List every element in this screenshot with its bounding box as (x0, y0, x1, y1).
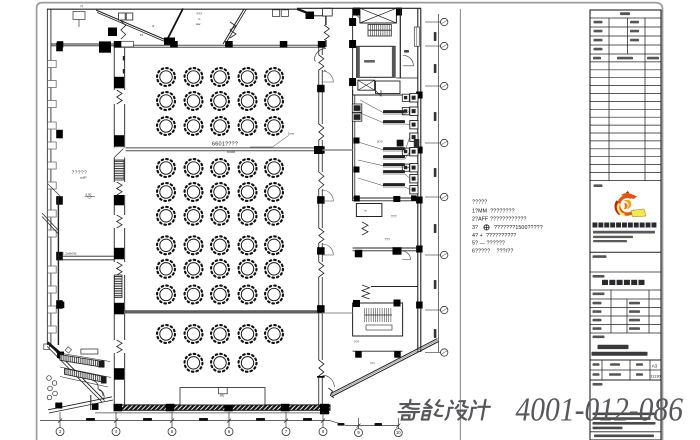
svg-text:1mm: 1mm (288, 132, 295, 136)
svg-text:???????1500?????: ???????1500????? (494, 225, 543, 231)
svg-text:???: ??? (370, 362, 375, 366)
svg-text:JR): JR) (220, 394, 224, 398)
svg-text:?????: ????? (472, 199, 487, 205)
svg-text:5? — ??????: 5? — ?????? (472, 241, 505, 247)
svg-text:10: 10 (396, 430, 401, 435)
svg-text:4? + ??????????: 4? + ?????????? (472, 233, 516, 239)
svg-text:4001-012-086: 4001-012-086 (516, 392, 684, 429)
svg-text:2?AFF ????????????: 2?AFF ???????????? (472, 216, 527, 222)
svg-text:???: ??? (354, 340, 360, 344)
svg-text:3?: 3? (472, 225, 478, 231)
svg-text:war: war (196, 22, 201, 26)
svg-text:6601????: 6601???? (212, 142, 238, 148)
svg-text:V??: V?? (377, 140, 383, 144)
svg-text:8.60M: 8.60M (227, 150, 236, 154)
svg-text:???: ??? (196, 12, 202, 16)
svg-text:?????: ????? (72, 169, 88, 175)
svg-text:A3: A3 (652, 363, 658, 368)
svg-text:??: ?? (80, 4, 84, 8)
svg-text:1.2x0M 91: 1.2x0M 91 (63, 252, 77, 256)
svg-text:???: ??? (385, 237, 391, 241)
svg-text:1?MM ????????: 1?MM ???????? (472, 209, 515, 215)
svg-text:xxM?: xxM? (80, 175, 87, 179)
svg-text:5.00: 5.00 (86, 192, 92, 196)
svg-text:15: 15 (140, 33, 144, 37)
svg-text:T??: T?? (391, 215, 397, 219)
svg-text:4/: 4/ (152, 24, 155, 28)
svg-text:6????? ???/??: 6????? ???/?? (472, 249, 513, 255)
svg-text:11130: 11130 (650, 373, 661, 378)
